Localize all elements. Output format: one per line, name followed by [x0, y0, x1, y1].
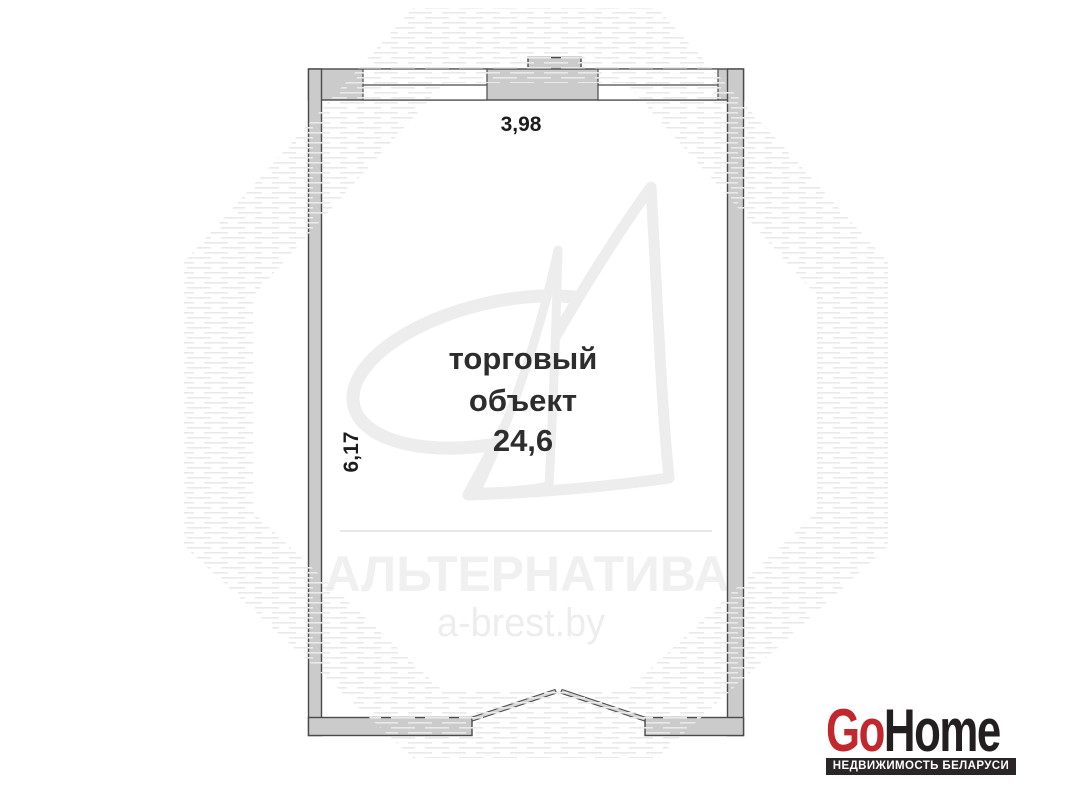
room-type-line2: объект [469, 383, 577, 418]
dimension-height-label: 6,17 [340, 432, 363, 473]
dimension-width-label: 3,98 [501, 113, 542, 136]
floor-plan-svg: АЛЬТЕРНАТИВА a-brest.by 3,98 [0, 0, 1068, 800]
gohome-logo: GoHome НЕДВИЖИМОСТЬ БЕЛАРУСИ [826, 704, 1022, 775]
room-type-line1: торговый [449, 341, 598, 376]
floor-plan-image: АЛЬТЕРНАТИВА a-brest.by 3,98 [0, 0, 1068, 800]
room-area-label: 24,6 [493, 423, 553, 458]
gohome-wordmark-go: Go [826, 697, 884, 764]
gohome-wordmark-home: Home [884, 697, 1000, 764]
gohome-wordmark: GoHome [826, 704, 969, 758]
watermark-underline [340, 530, 712, 532]
watermark-agency-text: АЛЬТЕРНАТИВА [325, 546, 730, 602]
watermark-site-text: a-brest.by [437, 601, 605, 645]
